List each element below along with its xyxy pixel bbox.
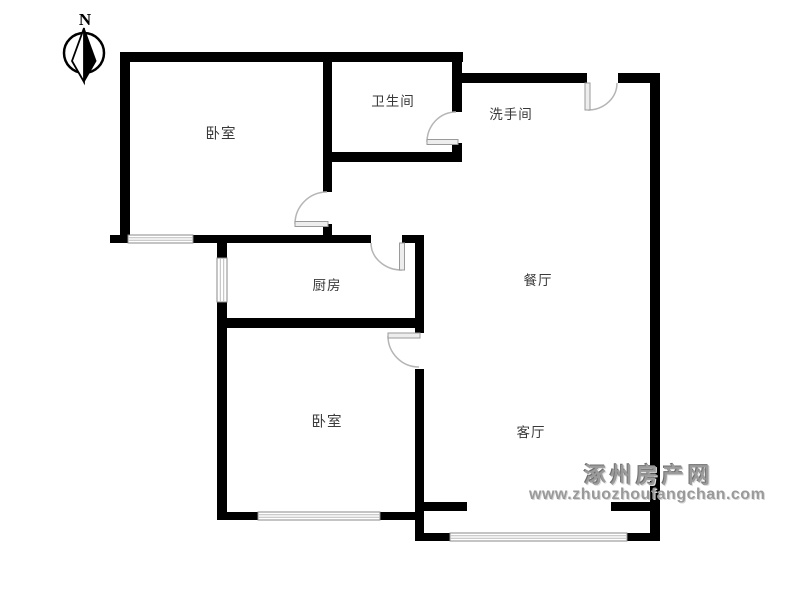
room-label-bedroom-bottom: 卧室 xyxy=(312,411,343,432)
watermark-site-url: www.zhuozhoufangchan.com xyxy=(529,486,765,504)
wall-left-upper xyxy=(120,52,130,243)
wall-top-right-a xyxy=(452,73,587,83)
walls xyxy=(110,52,660,541)
window-balcony xyxy=(450,533,627,541)
room-label-bedroom-top: 卧室 xyxy=(206,123,237,144)
door-bathroom xyxy=(427,112,458,145)
door-kitchen xyxy=(371,243,405,270)
window-kitchen xyxy=(217,258,227,302)
room-label-living: 客厅 xyxy=(517,421,546,441)
wall-bathroom-bottom xyxy=(323,152,462,162)
wall-living-bottom-a xyxy=(415,502,467,511)
wall-top xyxy=(120,52,463,62)
door-bedroom-top xyxy=(295,192,328,227)
floor-plan-page: N 卧室 卫生间 洗手间 厨房 餐厅 卧室 客厅 涿州房产网 www.zhuoz… xyxy=(0,0,800,600)
door-bedroom-bottom xyxy=(388,333,420,367)
room-label-bathroom: 卫生间 xyxy=(371,90,415,110)
window-bedroom-bottom xyxy=(258,512,380,520)
room-label-kitchen: 厨房 xyxy=(313,274,342,294)
north-compass-icon xyxy=(64,28,104,82)
wall-spine-upper xyxy=(415,235,424,333)
room-label-washroom: 洗手间 xyxy=(489,103,533,123)
wall-bed-bath-divider-upper xyxy=(323,52,332,192)
north-label: N xyxy=(72,10,98,30)
room-label-dining: 餐厅 xyxy=(524,269,553,289)
wall-kitchen-bottom xyxy=(217,318,424,328)
door-entry xyxy=(585,83,617,110)
window-bedroom-top xyxy=(128,235,193,243)
